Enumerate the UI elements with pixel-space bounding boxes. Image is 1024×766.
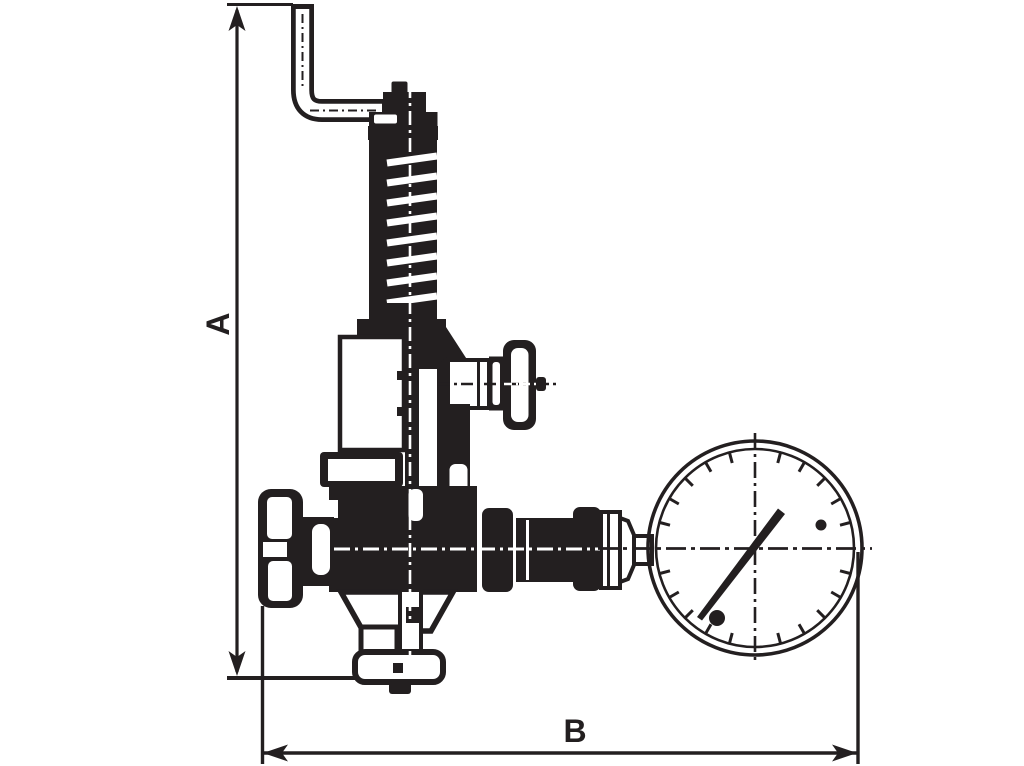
left-handwheel <box>258 489 303 608</box>
dimension-a-label: A <box>200 312 236 335</box>
gauge-tick <box>658 571 670 574</box>
gauge-tick <box>817 477 825 485</box>
gauge-tick <box>668 592 678 598</box>
union-highlight <box>328 459 395 481</box>
body-mass <box>329 486 477 592</box>
gauge-tick <box>840 571 852 574</box>
gauge-fitting <box>601 512 620 588</box>
cap-band-highlight <box>374 115 397 124</box>
gauge-tick <box>799 461 805 471</box>
technical-drawing-page: A B <box>0 0 1024 766</box>
cap-block <box>383 92 426 113</box>
valve-body <box>299 486 477 592</box>
dimension-b-label: B <box>563 713 586 749</box>
lever-tube-outer <box>303 4 387 111</box>
left-handwheel-hub-highlight <box>263 542 287 557</box>
bonnet-shell <box>340 337 404 450</box>
spring <box>369 138 437 320</box>
valve-dimension-drawing: A B <box>0 0 1024 766</box>
gauge-needle <box>697 509 785 621</box>
spring-seat <box>378 303 437 320</box>
gauge-tick <box>668 498 678 504</box>
gauge-marker-dot <box>816 520 827 531</box>
gauge-tick <box>658 522 670 525</box>
side-test-valve <box>437 340 556 508</box>
gland-pocket-highlight <box>312 524 330 575</box>
gauge-tick <box>817 610 825 618</box>
outlet-pipe-seam <box>526 520 529 580</box>
bottom-outlet <box>341 590 453 694</box>
bonnet-detail-tick-1 <box>397 371 404 380</box>
gauge-tick <box>729 633 732 645</box>
gauge-tick <box>840 522 852 525</box>
gauge-marker-dot <box>709 610 725 626</box>
left-handwheel-highlight-bottom <box>268 561 292 601</box>
bottom-flange-detail <box>393 663 403 673</box>
bottom-stub <box>389 681 411 694</box>
spindle-channel <box>405 325 419 487</box>
gauge-tick <box>684 610 692 618</box>
union-flange <box>320 452 403 487</box>
spring-top-plate <box>368 126 438 140</box>
gauge-tick <box>729 451 732 463</box>
gauge-tick <box>705 461 711 471</box>
body-corner-notch <box>327 500 338 518</box>
drain-channel-plug <box>406 607 420 623</box>
gauge-tick <box>705 624 711 634</box>
gauge-tick <box>831 592 841 598</box>
gauge-tick <box>778 451 781 463</box>
gauge-tick <box>778 633 781 645</box>
gauge-reducer <box>620 518 634 582</box>
gauge-tick <box>799 624 805 634</box>
easing-lever <box>303 4 387 111</box>
gauge-tick <box>831 498 841 504</box>
spring-body <box>369 138 437 319</box>
bonnet-detail-tick-2 <box>397 407 404 416</box>
gauge-tick <box>684 477 692 485</box>
left-handwheel-highlight-top <box>267 497 292 539</box>
